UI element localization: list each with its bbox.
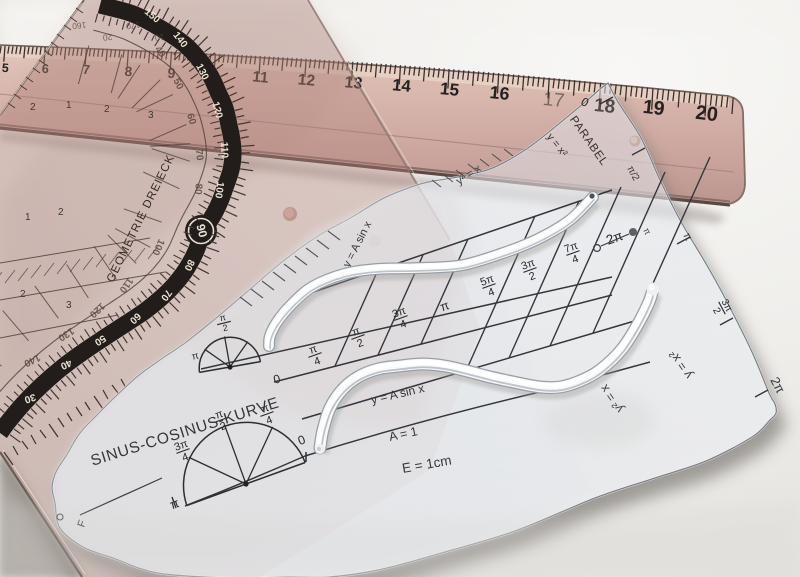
svg-text:5: 5 — [1, 61, 9, 75]
svg-text:20: 20 — [102, 32, 113, 43]
svg-text:170: 170 — [125, 20, 140, 31]
svg-text:3: 3 — [66, 300, 72, 311]
svg-text:14: 14 — [391, 75, 412, 96]
svg-text:18: 18 — [593, 95, 616, 118]
svg-text:160: 160 — [71, 20, 86, 31]
svg-text:1: 1 — [66, 100, 72, 111]
svg-text:70: 70 — [193, 149, 205, 162]
svg-text:16: 16 — [489, 82, 511, 104]
svg-text:2: 2 — [58, 207, 64, 218]
svg-text:20: 20 — [694, 102, 719, 126]
svg-text:2: 2 — [30, 102, 36, 113]
svg-text:1: 1 — [25, 212, 31, 223]
svg-text:3: 3 — [148, 110, 154, 121]
svg-text:10: 10 — [154, 32, 165, 43]
svg-text:15: 15 — [439, 78, 460, 100]
svg-text:2: 2 — [104, 104, 110, 115]
svg-text:17: 17 — [542, 88, 566, 112]
svg-text:2: 2 — [20, 289, 26, 300]
svg-text:19: 19 — [642, 96, 666, 120]
svg-text:110: 110 — [218, 142, 230, 159]
